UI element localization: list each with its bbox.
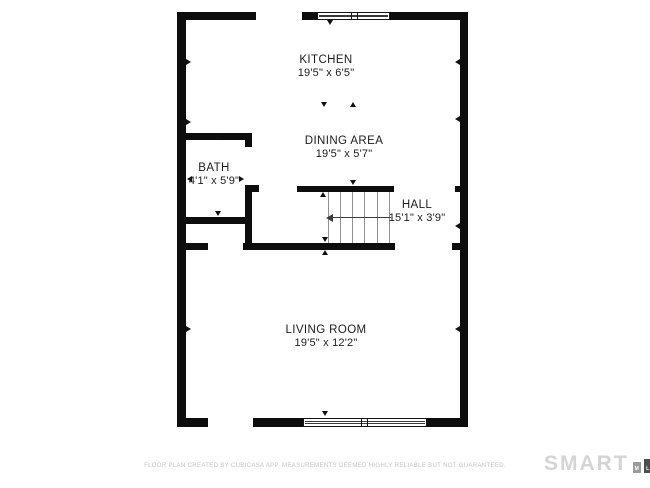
measure-marker-down-icon [327, 20, 333, 25]
outer-wall-top-right [390, 12, 468, 20]
measure-marker-down-icon [322, 411, 328, 416]
outer-wall-right [460, 12, 468, 427]
measure-marker-down-icon [322, 237, 328, 242]
stairs-top-wall-stub [455, 186, 460, 192]
measure-marker-up-icon [320, 192, 326, 197]
measure-marker-up-icon [322, 250, 328, 255]
room-label-hall: HALL15'1" x 3'9" [389, 199, 446, 225]
living-room-window [303, 418, 427, 427]
room-dimensions-kitchen: 19'5" x 6'5" [298, 67, 355, 80]
bath-bottom-wall [186, 217, 252, 224]
outer-wall-bottom-right [427, 418, 468, 427]
outer-wall-left [177, 12, 186, 427]
smartmls-bars-icon: MLS [633, 455, 650, 475]
outer-wall-bottom-mid [253, 418, 303, 427]
outer-wall-top-mid [302, 12, 317, 20]
outer-wall-top-left [177, 12, 256, 20]
room-label-kitchen: KITCHEN19'5" x 6'5" [298, 54, 355, 80]
measure-marker-left-icon [455, 326, 460, 332]
logo-bar-m: M [633, 462, 641, 473]
measure-marker-right-icon [239, 176, 244, 182]
floorplan-page: KITCHEN19'5" x 6'5"DINING AREA19'5" x 5'… [0, 0, 650, 488]
hall-bottom-wall-left [186, 243, 208, 250]
room-label-dining-area: DINING AREA19'5" x 5'7" [305, 135, 384, 161]
room-name-dining-area: DINING AREA [305, 135, 384, 148]
logo-bar-l: L [644, 459, 650, 473]
room-dimensions-living-room: 19'5" x 12'2" [285, 337, 366, 350]
room-dimensions-bath: 4'1" x 5'9" [189, 175, 239, 188]
living-room-window-divider [361, 419, 362, 426]
measure-marker-down-icon [215, 211, 221, 216]
room-name-hall: HALL [389, 199, 446, 212]
stairs-top-wall [297, 186, 394, 192]
room-dimensions-dining-area: 19'5" x 5'7" [305, 148, 384, 161]
living-room-window-pane [305, 421, 425, 424]
kitchen-window-pane [319, 15, 388, 17]
measure-marker-down-icon [321, 102, 327, 107]
kitchen-window [317, 12, 390, 20]
measure-marker-up-icon [350, 102, 356, 107]
bath-door-jamb-bottom [245, 185, 259, 192]
room-name-living-room: LIVING ROOM [285, 324, 366, 337]
measure-marker-left-icon [455, 223, 460, 229]
smartmls-logo: SMART MLS [544, 452, 650, 475]
smartmls-logo-text: SMART [544, 452, 629, 475]
living-room-window-divider [367, 419, 368, 426]
measure-marker-left-icon [455, 59, 460, 65]
room-name-kitchen: KITCHEN [298, 54, 355, 67]
bath-door-jamb-top [245, 133, 252, 147]
measure-marker-right-icon [186, 119, 191, 125]
kitchen-window-divider [357, 13, 358, 19]
room-label-living-room: LIVING ROOM19'5" x 12'2" [285, 324, 366, 350]
stairs-direction-arrow-shaft [333, 217, 391, 218]
measure-marker-right-icon [186, 326, 191, 332]
measure-marker-down-icon [350, 180, 356, 185]
hall-bottom-wall-stub [452, 243, 460, 250]
hall-bottom-wall-main [243, 243, 395, 250]
outer-wall-bottom-left [177, 418, 208, 427]
room-label-bath: BATH4'1" x 5'9" [189, 162, 239, 188]
room-name-bath: BATH [189, 162, 239, 175]
measure-marker-right-icon [186, 59, 191, 65]
floor-plan-drawing: KITCHEN19'5" x 6'5"DINING AREA19'5" x 5'… [0, 0, 650, 488]
kitchen-window-divider [351, 13, 352, 19]
room-dimensions-hall: 15'1" x 3'9" [389, 212, 446, 225]
measure-marker-left-icon [455, 116, 460, 122]
measure-marker-up-icon [215, 134, 221, 139]
stairs-direction-arrow-head [326, 214, 333, 222]
